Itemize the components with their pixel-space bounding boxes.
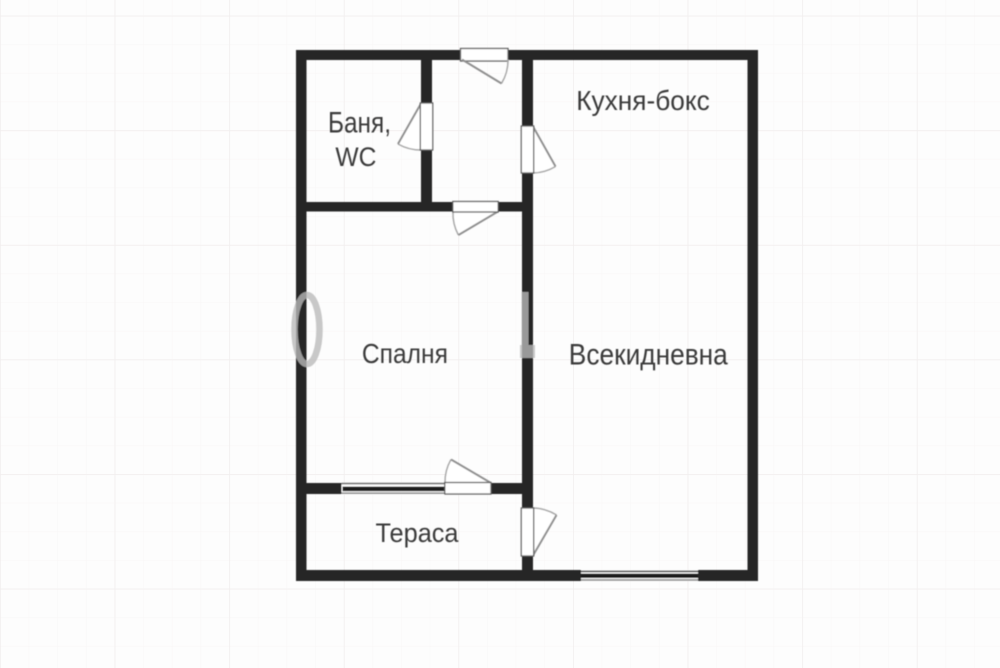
svg-text:Кухня-бокс: Кухня-бокс bbox=[576, 85, 710, 116]
svg-text:Баня,: Баня, bbox=[328, 107, 391, 140]
svg-text:Всекидневна: Всекидневна bbox=[569, 339, 728, 372]
svg-text:WC: WC bbox=[335, 142, 376, 172]
svg-text:Спалня: Спалня bbox=[362, 338, 448, 369]
svg-text:Тераса: Тераса bbox=[376, 517, 460, 548]
